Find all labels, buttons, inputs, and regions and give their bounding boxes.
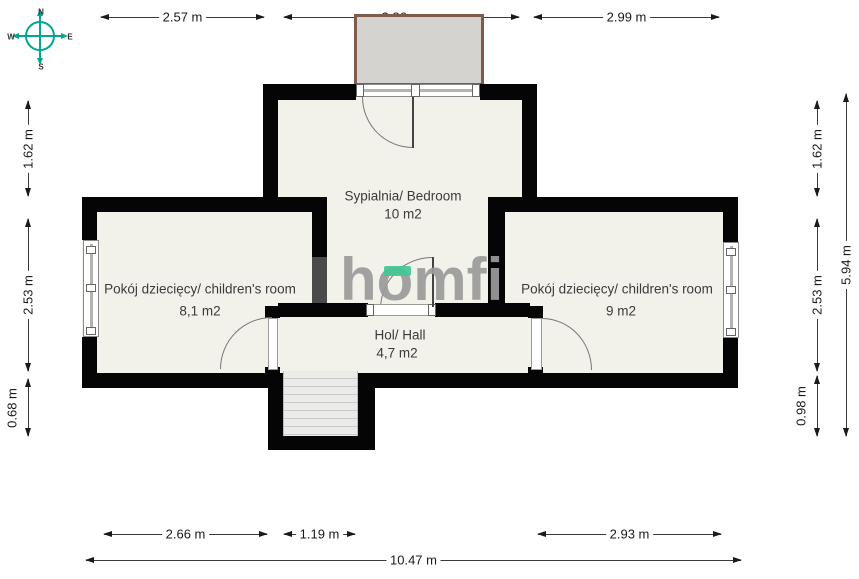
child-left-area-label: 8,1 m2 (179, 304, 220, 319)
balcony-window-post-right (472, 84, 480, 97)
hall-area-label: 4,7 m2 (376, 346, 417, 361)
dimension-bottom-1: 2.66 m (103, 527, 268, 541)
compass-west-label: W (7, 33, 15, 42)
left-window-handle-bottom (86, 327, 96, 335)
dimension-top-1: 2.57 m (100, 10, 265, 24)
dimension-bottom-3: 2.93 m (537, 527, 722, 541)
wall-left-room-top (82, 197, 315, 212)
bedroom-area-label: 10 m2 (384, 207, 422, 222)
dimension-top-3: 2.99 m (533, 10, 720, 24)
dimension-right-3: 0.98 m (810, 375, 824, 437)
right-window-handle-top (726, 248, 736, 256)
compass-south-label: S (38, 63, 43, 72)
child-right-area-label: 9 m2 (606, 304, 636, 319)
dimension-bottom-total: 10.47 m (85, 553, 742, 567)
stairs (283, 371, 358, 436)
dimension-left-1: 1.62 m (21, 100, 35, 197)
wall-bottom-right (358, 373, 738, 388)
dimension-right-2: 2.53 m (810, 218, 824, 372)
compass-ew-line (17, 35, 63, 37)
dimension-left-2: 2.53 m (21, 218, 35, 372)
balcony-window-post-left (356, 84, 364, 97)
right-window-handle-mid (726, 286, 736, 294)
wall-bedroom-upper-left (263, 84, 278, 208)
wall-bedroom-lower-left-partial (312, 257, 327, 308)
wall-bedroom-upper-right (522, 84, 537, 208)
floor-plan: N S W E (0, 0, 859, 579)
hall-name-label: Hol/ Hall (374, 328, 425, 343)
dimension-left-3: 0.68 m (21, 378, 35, 437)
left-window-handle-top (86, 246, 96, 254)
dimension-right-1: 1.62 m (810, 100, 824, 197)
right-window-handle-bottom (726, 328, 736, 336)
left-room-door-frame (268, 318, 278, 370)
wall-stairwell-right (358, 388, 375, 450)
balcony (354, 14, 484, 86)
wall-right-exterior-upper (723, 197, 738, 242)
child-right-name-label: Pokój dziecięcy/ children's room (521, 282, 713, 297)
child-left-name-label: Pokój dziecięcy/ children's room (104, 282, 296, 297)
dimension-bottom-2: 1.19 m (283, 527, 356, 541)
watermark-accent-bar (384, 266, 411, 276)
bedroom-name-label: Sypialnia/ Bedroom (344, 189, 461, 204)
wall-right-room-top (488, 197, 738, 212)
wall-bottom-left (82, 373, 283, 388)
wall-left-exterior-upper (82, 197, 97, 240)
compass-north-label: N (38, 8, 44, 17)
compass-rose: N S W E (8, 6, 74, 72)
balcony-door-leaf (412, 97, 414, 148)
wall-bedroom-lower-left (312, 197, 327, 257)
left-window-handle-mid (86, 284, 96, 292)
right-room-door-frame (531, 318, 542, 370)
watermark-logo: homfi (340, 250, 503, 310)
dimension-right-total: 5.94 m (839, 93, 853, 437)
balcony-window-post-center (411, 84, 420, 97)
compass-east-label: E (67, 33, 72, 42)
door-post-right-top (528, 306, 543, 318)
